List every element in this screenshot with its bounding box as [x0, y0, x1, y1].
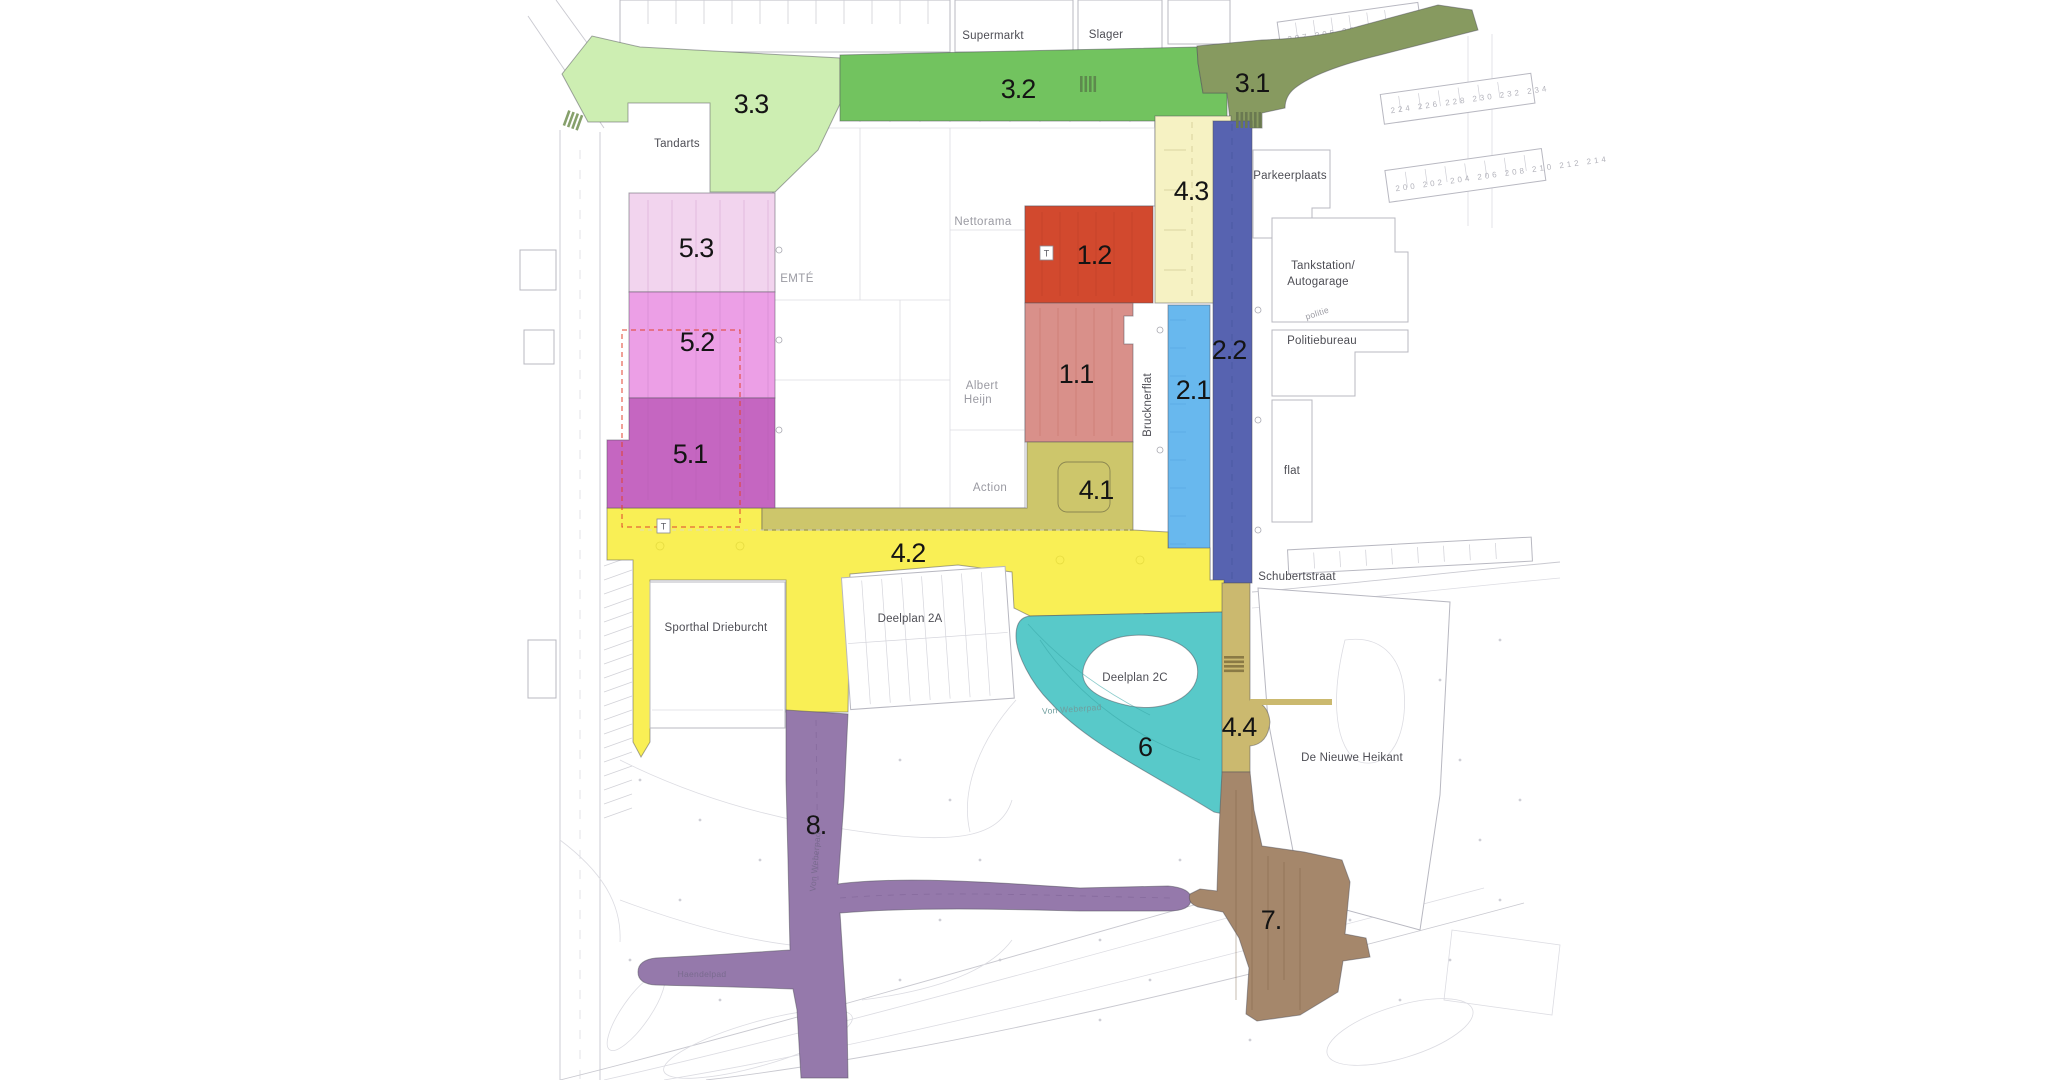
zone-1-2-label: 1.2: [1077, 240, 1112, 270]
zone-1-1-label: 1.1: [1059, 359, 1094, 389]
label-emte: EMTÉ: [780, 272, 814, 285]
label-action: Action: [973, 482, 1007, 494]
label-albert: Albert: [966, 380, 999, 392]
zone-4-4-tail: [1250, 699, 1332, 705]
base-buildings-north: [620, 0, 1230, 52]
zone-3-3-label: 3.3: [734, 89, 769, 119]
svg-text:T: T: [661, 522, 667, 532]
label-slager: Slager: [1089, 29, 1123, 41]
zone-2-1-label: 2.1: [1176, 375, 1211, 405]
zone-2-2-label: 2.2: [1212, 335, 1247, 365]
zone-3-2-label: 3.2: [1001, 74, 1036, 104]
label-deelplan-2c: Deelplan 2C: [1102, 672, 1168, 684]
label-politiebureau: Politiebureau: [1287, 335, 1357, 347]
label-haendelpad: Haendelpad: [678, 969, 727, 979]
label-schubertstraat: Schubertstraat: [1258, 571, 1336, 583]
base-hatch-strips: [604, 556, 632, 818]
svg-text:T: T: [1044, 249, 1050, 259]
t-marker-zone-4-2: T: [657, 519, 670, 533]
label-deelplan-2a: Deelplan 2A: [878, 613, 943, 625]
zone-3-1-label: 3.1: [1235, 68, 1270, 98]
site-plan-drawing: 207 205 203 201 199 197 224 226 228 230 …: [0, 0, 2048, 1080]
site-plan-canvas: 207 205 203 201 199 197 224 226 228 230 …: [0, 0, 2048, 1080]
label-brucknerflat: Brucknerflat: [1142, 373, 1154, 437]
zone-4-2-label: 4.2: [891, 538, 926, 568]
label-flat: flat: [1284, 465, 1301, 477]
label-tankstation-line1: Tankstation/: [1291, 260, 1355, 272]
zone-5-2-label: 5.2: [680, 327, 715, 357]
label-de-nieuwe-heikant: De Nieuwe Heikant: [1301, 752, 1403, 764]
zone-8-area: [638, 710, 1191, 1078]
label-parkeerplaats: Parkeerplaats: [1253, 170, 1327, 182]
zone-5-3-label: 5.3: [679, 233, 714, 263]
label-nettorama: Nettorama: [954, 216, 1011, 228]
label-supermarkt: Supermarkt: [962, 30, 1024, 42]
zone-4-4-label: 4.4: [1222, 712, 1258, 742]
base-sporthal-building: [650, 582, 785, 728]
zone-3-3-area: [562, 36, 840, 192]
label-tankstation-line2: Autogarage: [1287, 276, 1348, 288]
label-tandarts: Tandarts: [654, 138, 700, 150]
t-marker-zone-1-2: T: [1040, 246, 1053, 260]
zone-4-1-label: 4.1: [1079, 475, 1114, 505]
base-deelplan2a: [841, 566, 1014, 709]
zone-7-label: 7.: [1261, 905, 1282, 935]
zone-6-label: 6: [1138, 732, 1152, 762]
zone-5-1-label: 5.1: [673, 439, 708, 469]
zone-4-3-label: 4.3: [1174, 176, 1209, 206]
label-heijn: Heijn: [964, 394, 992, 406]
base-buildings-west: [520, 250, 556, 698]
label-sporthal-drieburcht: Sporthal Drieburcht: [665, 622, 768, 634]
